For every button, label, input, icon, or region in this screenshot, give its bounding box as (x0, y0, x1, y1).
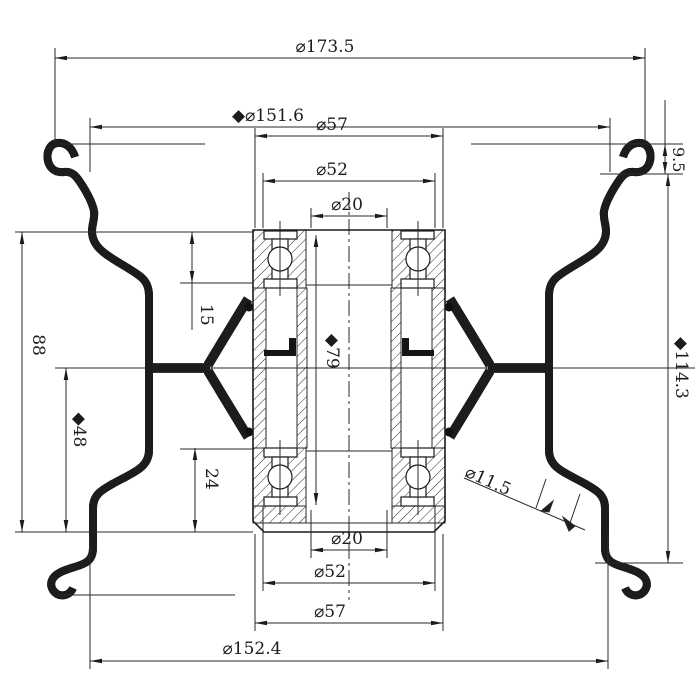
dim-15: 15 (196, 304, 216, 326)
dim-114-3: ◆114.3 (671, 337, 691, 399)
weld-bead (245, 428, 254, 437)
dim-57-top: ⌀57 (316, 115, 348, 135)
dim-9-5: 9.5 (669, 147, 688, 172)
dim-52-bottom: ⌀52 (314, 562, 346, 582)
weld-bead (445, 303, 454, 312)
dim-151-6: ◆⌀151.6 (232, 106, 304, 126)
dim-88: 88 (28, 334, 48, 356)
technical-drawing-page: ⌀173.5 ◆⌀151.6 ⌀57 ⌀52 ⌀20 9.5 ◆114.3 88… (0, 0, 700, 700)
dim-152-4: ⌀152.4 (223, 639, 282, 659)
dim-48: ◆48 (69, 413, 89, 448)
dim-173-5: ⌀173.5 (296, 37, 355, 57)
weld-bead (445, 428, 454, 437)
dim-52-top: ⌀52 (316, 160, 348, 180)
dim-20-top: ⌀20 (331, 195, 363, 215)
dim-79: ◆79 (322, 334, 342, 369)
dimension-texts: ⌀173.5 ◆⌀151.6 ⌀57 ⌀52 ⌀20 9.5 ◆114.3 88… (28, 37, 691, 659)
dim-57-bottom: ⌀57 (314, 602, 346, 622)
dim-24: 24 (201, 468, 221, 490)
dim-11-5: ⌀11.5 (462, 462, 514, 500)
dim-20-bottom: ⌀20 (331, 529, 363, 549)
wheel-section-drawing: ⌀173.5 ◆⌀151.6 ⌀57 ⌀52 ⌀20 9.5 ◆114.3 88… (0, 0, 700, 700)
weld-bead (245, 303, 254, 312)
